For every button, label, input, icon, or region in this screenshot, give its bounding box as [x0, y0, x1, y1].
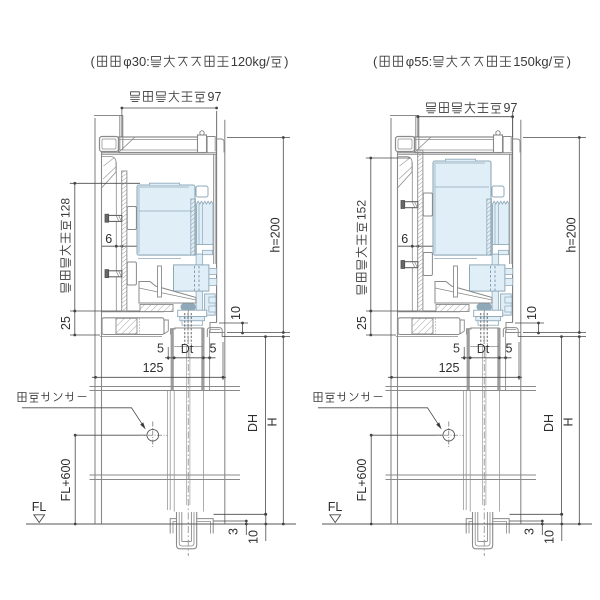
svg-text:97: 97: [504, 101, 518, 115]
svg-text:152: 152: [355, 200, 369, 220]
svg-text:φ30:: φ30:: [123, 54, 150, 69]
svg-text:(: (: [91, 54, 96, 69]
svg-text:97: 97: [208, 90, 222, 104]
svg-text:φ55:: φ55:: [406, 54, 433, 69]
svg-text:): ): [567, 54, 571, 69]
svg-text:(: (: [373, 54, 378, 69]
svg-text:128: 128: [59, 198, 73, 218]
svg-text:120kg/: 120kg/: [231, 54, 270, 69]
svg-text:150kg/: 150kg/: [513, 54, 552, 69]
svg-text:): ): [284, 54, 288, 69]
